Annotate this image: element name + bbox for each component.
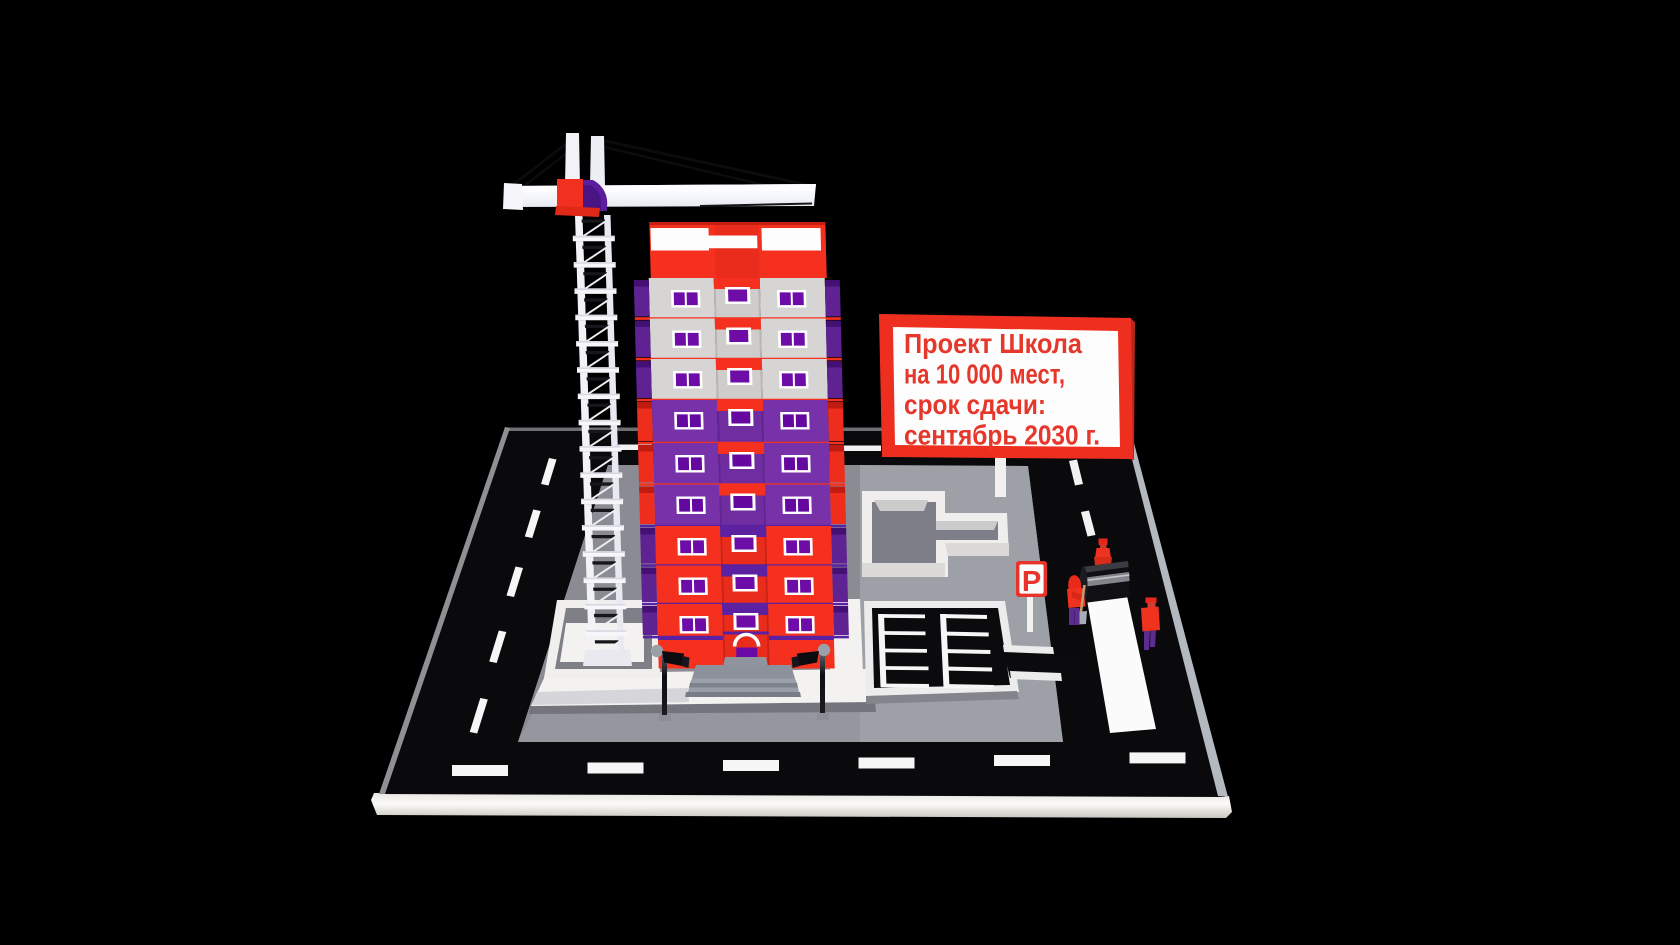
svg-text:Проект Школа: Проект Школа bbox=[904, 328, 1083, 359]
svg-text:сентябрь 2030 г.: сентябрь 2030 г. bbox=[904, 420, 1100, 451]
svg-text:P: P bbox=[1022, 566, 1041, 598]
svg-text:срок сдачи:: срок сдачи: bbox=[904, 389, 1046, 420]
svg-text:на 10 000 мест,: на 10 000 мест, bbox=[904, 359, 1065, 390]
